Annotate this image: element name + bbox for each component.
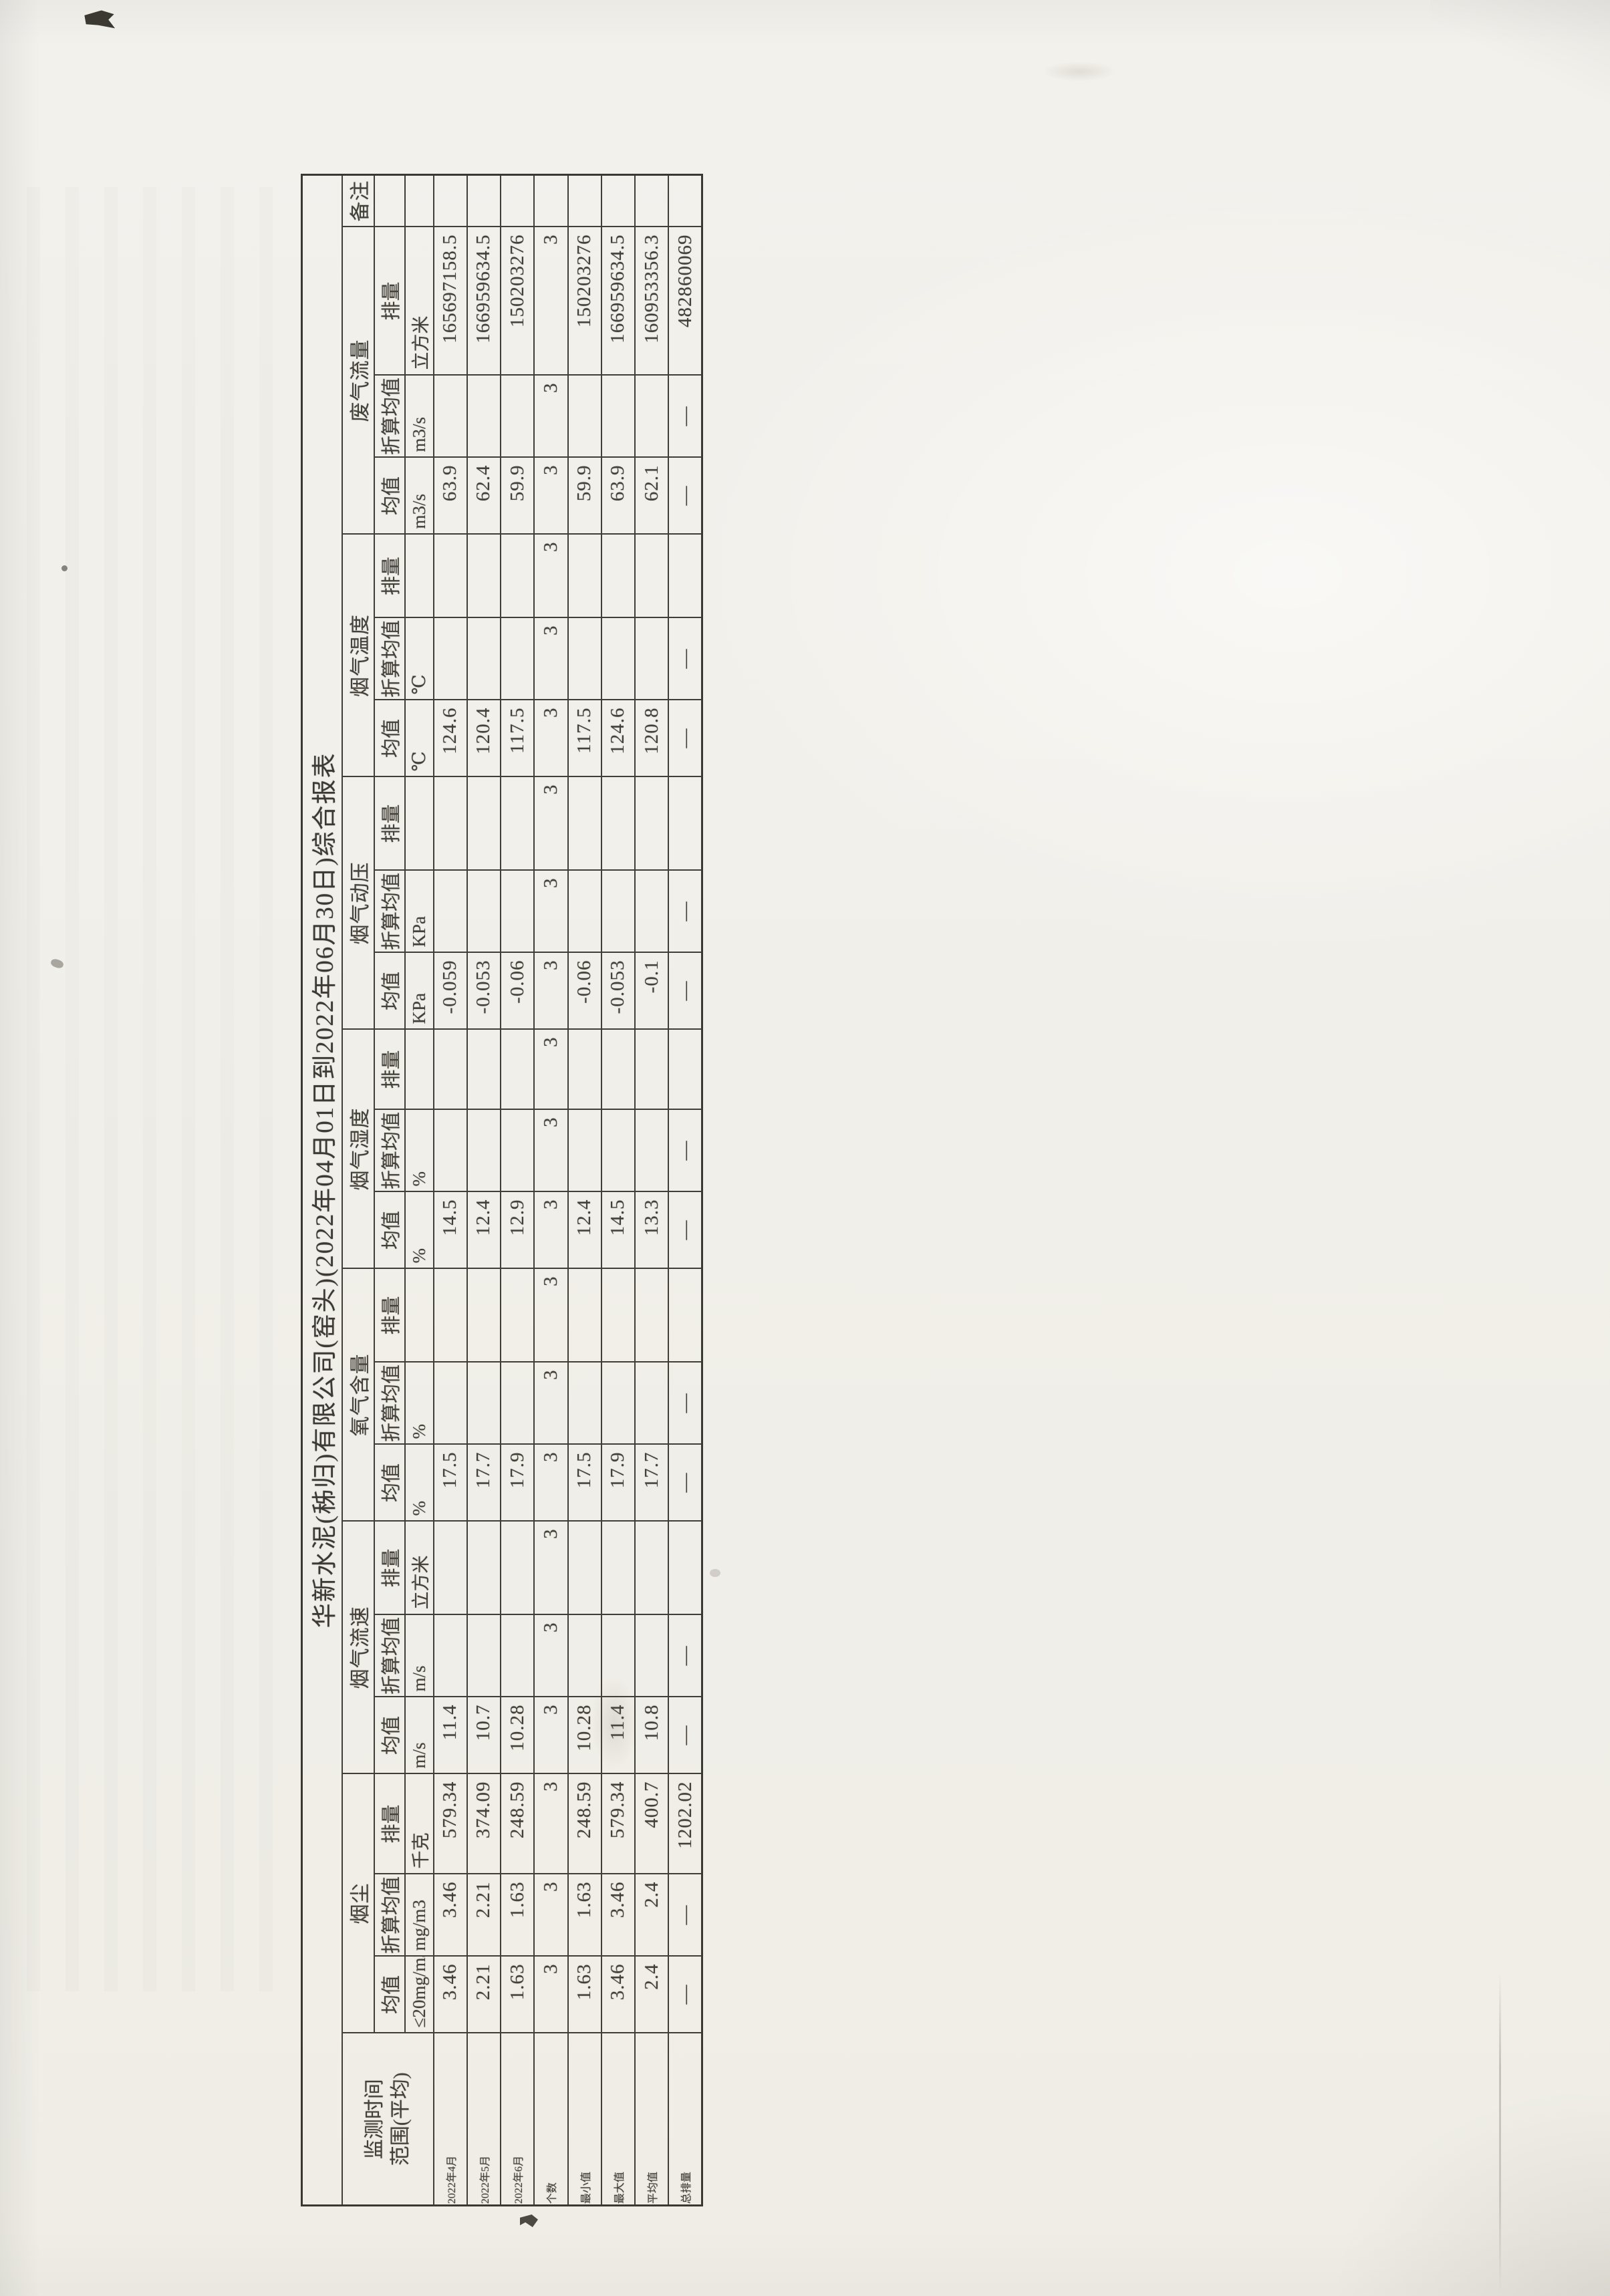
subheader-waste-gas-flow-discharge: 排量: [374, 227, 405, 376]
cell-flue-gas-temperature-discharge-r5: [601, 535, 635, 618]
cell-flue-gas-dynamic-pressure-converted-mean-r5: [601, 871, 635, 953]
unit-waste-gas-flow-discharge: 立方米: [405, 227, 434, 376]
cell-flue-gas-dynamic-pressure-discharge-r5: [601, 777, 635, 871]
subheader-flue-gas-dynamic-pressure-mean: 均值: [374, 953, 405, 1030]
cell-flue-gas-velocity-converted-mean-r3: 3: [534, 1615, 567, 1697]
subheader-flue-gas-temperature-converted-mean: 折算均值: [374, 618, 405, 700]
cell-flue-gas-velocity-discharge-r2: [501, 1522, 534, 1615]
cell-flue-gas-dynamic-pressure-discharge-r7: [668, 777, 702, 871]
cell-flue-gas-humidity-converted-mean-r2: [501, 1110, 534, 1192]
cell-flue-gas-velocity-mean-r3: 3: [534, 1697, 567, 1774]
cell-oxygen-content-converted-mean-r6: [635, 1362, 668, 1445]
cell-oxygen-content-mean-r1: 17.7: [467, 1445, 501, 1522]
cell-flue-gas-dynamic-pressure-converted-mean-r1: [467, 871, 501, 953]
cell-dust-discharge-r1: 374.09: [467, 1774, 501, 1874]
unit-flue-gas-temperature-mean: ℃: [405, 700, 434, 777]
cell-dust-converted-mean-r7: —: [668, 1874, 702, 1957]
cell-oxygen-content-discharge-r4: [568, 1269, 601, 1362]
cell-flue-gas-temperature-discharge-r0: [434, 535, 467, 618]
cell-waste-gas-flow-discharge-r3: 3: [534, 227, 567, 376]
unit-flue-gas-humidity-discharge: [405, 1030, 434, 1110]
scan-artifact-top-right-shade: [1430, 0, 1610, 114]
row-label-1: 2022年5月: [467, 2033, 501, 2206]
unit-dust-discharge: 千克: [405, 1774, 434, 1874]
cell-remark-r3: [534, 174, 567, 227]
cell-flue-gas-temperature-converted-mean-r2: [501, 618, 534, 700]
subheader-flue-gas-humidity-converted-mean: 折算均值: [374, 1110, 405, 1192]
scan-artifact-crease-line: [1499, 1973, 1501, 2293]
cell-oxygen-content-discharge-r5: [601, 1269, 635, 1362]
cell-flue-gas-humidity-mean-r1: 12.4: [467, 1192, 501, 1269]
row-label-6: 平均值: [635, 2033, 668, 2206]
cell-dust-discharge-r5: 579.34: [601, 1774, 635, 1874]
cell-dust-mean-r0: 3.46: [434, 1957, 467, 2033]
cell-flue-gas-dynamic-pressure-mean-r6: -0.1: [635, 953, 668, 1030]
cell-oxygen-content-mean-r5: 17.9: [601, 1445, 635, 1522]
cell-flue-gas-temperature-mean-r1: 120.4: [467, 700, 501, 777]
row-label-0: 2022年4月: [434, 2033, 467, 2206]
cell-dust-discharge-r2: 248.59: [501, 1774, 534, 1874]
cell-flue-gas-temperature-discharge-r2: [501, 535, 534, 618]
unit-flue-gas-humidity-converted-mean: %: [405, 1110, 434, 1192]
cell-waste-gas-flow-converted-mean-r4: [568, 376, 601, 458]
cell-flue-gas-velocity-converted-mean-r7: —: [668, 1615, 702, 1697]
subheader-oxygen-content-converted-mean: 折算均值: [374, 1362, 405, 1445]
cell-flue-gas-humidity-converted-mean-r4: [568, 1110, 601, 1192]
cell-flue-gas-humidity-discharge-r3: 3: [534, 1030, 567, 1110]
cell-remark-r5: [601, 174, 635, 227]
cell-waste-gas-flow-converted-mean-r7: —: [668, 376, 702, 458]
cell-oxygen-content-discharge-r0: [434, 1269, 467, 1362]
cell-flue-gas-humidity-discharge-r7: [668, 1030, 702, 1110]
cell-flue-gas-humidity-discharge-r1: [467, 1030, 501, 1110]
scan-artifact-top-left-mark: [84, 8, 117, 33]
cell-flue-gas-velocity-discharge-r7: [668, 1522, 702, 1615]
unit-waste-gas-flow-mean: m3/s: [405, 458, 434, 535]
cell-flue-gas-dynamic-pressure-discharge-r0: [434, 777, 467, 871]
cell-dust-discharge-r7: 1202.02: [668, 1774, 702, 1874]
cell-dust-converted-mean-r6: 2.4: [635, 1874, 668, 1957]
group-header-waste-gas-flow: 废气流量: [342, 227, 374, 535]
cell-oxygen-content-converted-mean-r4: [568, 1362, 601, 1445]
cell-flue-gas-humidity-discharge-r0: [434, 1030, 467, 1110]
cell-waste-gas-flow-converted-mean-r0: [434, 376, 467, 458]
cell-flue-gas-velocity-discharge-r1: [467, 1522, 501, 1615]
row-label-4: 最小值: [568, 2033, 601, 2206]
cell-flue-gas-temperature-mean-r5: 124.6: [601, 700, 635, 777]
unit-waste-gas-flow-converted-mean: m3/s: [405, 376, 434, 458]
subheader-flue-gas-velocity-discharge: 排量: [374, 1522, 405, 1615]
subheader-dust-converted-mean: 折算均值: [374, 1874, 405, 1957]
subheader-flue-gas-velocity-mean: 均值: [374, 1697, 405, 1774]
unit-flue-gas-velocity-discharge: 立方米: [405, 1522, 434, 1615]
cell-dust-mean-r7: —: [668, 1957, 702, 2033]
cell-oxygen-content-mean-r7: —: [668, 1445, 702, 1522]
cell-flue-gas-humidity-converted-mean-r1: [467, 1110, 501, 1192]
cell-flue-gas-humidity-mean-r3: 3: [534, 1192, 567, 1269]
cell-dust-mean-r1: 2.21: [467, 1957, 501, 2033]
cell-flue-gas-velocity-mean-r1: 10.7: [467, 1697, 501, 1774]
cell-flue-gas-temperature-converted-mean-r4: [568, 618, 601, 700]
remark-subheader-empty: [374, 174, 405, 227]
subheader-flue-gas-humidity-discharge: 排量: [374, 1030, 405, 1110]
cell-waste-gas-flow-discharge-r0: 165697158.5: [434, 227, 467, 376]
row-label-3: 个数: [534, 2033, 567, 2206]
cell-remark-r7: [668, 174, 702, 227]
cell-flue-gas-velocity-converted-mean-r5: [601, 1615, 635, 1697]
cell-flue-gas-humidity-converted-mean-r7: —: [668, 1110, 702, 1192]
row-header-line1: 监测时间: [364, 2079, 386, 2159]
cell-flue-gas-dynamic-pressure-converted-mean-r3: 3: [534, 871, 567, 953]
row-label-2: 2022年6月: [501, 2033, 534, 2206]
cell-oxygen-content-converted-mean-r7: —: [668, 1362, 702, 1445]
cell-flue-gas-velocity-mean-r2: 10.28: [501, 1697, 534, 1774]
cell-dust-discharge-r0: 579.34: [434, 1774, 467, 1874]
group-header-flue-gas-dynamic-pressure: 烟气动压: [342, 777, 374, 1030]
group-header-flue-gas-humidity: 烟气湿度: [342, 1030, 374, 1269]
scan-streaks: [27, 187, 287, 1991]
unit-flue-gas-dynamic-pressure-discharge: [405, 777, 434, 871]
remark-unit-empty: [405, 174, 434, 227]
unit-dust-mean: ≤20mg/m3: [405, 1957, 434, 2033]
cell-oxygen-content-mean-r6: 17.7: [635, 1445, 668, 1522]
cell-oxygen-content-mean-r3: 3: [534, 1445, 567, 1522]
cell-flue-gas-temperature-discharge-r3: 3: [534, 535, 567, 618]
cell-waste-gas-flow-discharge-r7: 482860069: [668, 227, 702, 376]
cell-flue-gas-velocity-discharge-r6: [635, 1522, 668, 1615]
unit-flue-gas-velocity-converted-mean: m/s: [405, 1615, 434, 1697]
cell-waste-gas-flow-discharge-r1: 166959634.5: [467, 227, 501, 376]
cell-waste-gas-flow-discharge-r2: 150203276: [501, 227, 534, 376]
cell-flue-gas-temperature-mean-r2: 117.5: [501, 700, 534, 777]
cell-dust-discharge-r6: 400.7: [635, 1774, 668, 1874]
cell-oxygen-content-discharge-r6: [635, 1269, 668, 1362]
cell-flue-gas-dynamic-pressure-mean-r7: —: [668, 953, 702, 1030]
cell-waste-gas-flow-mean-r0: 63.9: [434, 458, 467, 535]
cell-flue-gas-humidity-mean-r0: 14.5: [434, 1192, 467, 1269]
cell-flue-gas-velocity-mean-r7: —: [668, 1697, 702, 1774]
unit-flue-gas-temperature-converted-mean: ℃: [405, 618, 434, 700]
cell-waste-gas-flow-mean-r4: 59.9: [568, 458, 601, 535]
subheader-dust-mean: 均值: [374, 1957, 405, 2033]
cell-flue-gas-dynamic-pressure-converted-mean-r4: [568, 871, 601, 953]
cell-flue-gas-humidity-discharge-r4: [568, 1030, 601, 1110]
paper-background: 华新水泥(秭归)有限公司(窑头)(2022年04月01日到2022年06月30日…: [0, 0, 1610, 2296]
cell-dust-discharge-r4: 248.59: [568, 1774, 601, 1874]
cell-flue-gas-temperature-discharge-r1: [467, 535, 501, 618]
cell-flue-gas-dynamic-pressure-discharge-r3: 3: [534, 777, 567, 871]
scan-artifact-bottom-mark: [520, 2214, 538, 2227]
cell-flue-gas-dynamic-pressure-mean-r4: -0.06: [568, 953, 601, 1030]
cell-flue-gas-humidity-mean-r5: 14.5: [601, 1192, 635, 1269]
scanned-report-page: { "table": { "title": "华新水泥(秭归)有限公司(窑头)(…: [0, 0, 1610, 2296]
cell-flue-gas-dynamic-pressure-discharge-r4: [568, 777, 601, 871]
cell-dust-converted-mean-r3: 3: [534, 1874, 567, 1957]
cell-waste-gas-flow-mean-r7: —: [668, 458, 702, 535]
cell-oxygen-content-discharge-r2: [501, 1269, 534, 1362]
cell-flue-gas-dynamic-pressure-mean-r1: -0.053: [467, 953, 501, 1030]
cell-dust-converted-mean-r0: 3.46: [434, 1874, 467, 1957]
cell-oxygen-content-converted-mean-r2: [501, 1362, 534, 1445]
cell-flue-gas-dynamic-pressure-mean-r5: -0.053: [601, 953, 635, 1030]
scan-artifact-corner-shadow: [1329, 2082, 1610, 2296]
cell-oxygen-content-discharge-r1: [467, 1269, 501, 1362]
unit-flue-gas-dynamic-pressure-mean: KPa: [405, 953, 434, 1030]
cell-waste-gas-flow-converted-mean-r5: [601, 376, 635, 458]
cell-flue-gas-velocity-converted-mean-r1: [467, 1615, 501, 1697]
cell-flue-gas-temperature-converted-mean-r3: 3: [534, 618, 567, 700]
cell-dust-converted-mean-r1: 2.21: [467, 1874, 501, 1957]
subheader-dust-discharge: 排量: [374, 1774, 405, 1874]
cell-waste-gas-flow-mean-r5: 63.9: [601, 458, 635, 535]
cell-dust-converted-mean-r5: 3.46: [601, 1874, 635, 1957]
row-label-5: 最大值: [601, 2033, 635, 2206]
cell-dust-mean-r3: 3: [534, 1957, 567, 2033]
cell-flue-gas-velocity-discharge-r0: [434, 1522, 467, 1615]
cell-dust-discharge-r3: 3: [534, 1774, 567, 1874]
subheader-flue-gas-temperature-discharge: 排量: [374, 535, 405, 618]
row-header-line2: 范围(平均): [390, 2072, 412, 2166]
cell-waste-gas-flow-converted-mean-r2: [501, 376, 534, 458]
cell-flue-gas-dynamic-pressure-mean-r2: -0.06: [501, 953, 534, 1030]
cell-flue-gas-dynamic-pressure-mean-r0: -0.059: [434, 953, 467, 1030]
cell-flue-gas-humidity-mean-r6: 13.3: [635, 1192, 668, 1269]
cell-flue-gas-velocity-mean-r5: 11.4: [601, 1697, 635, 1774]
cell-flue-gas-velocity-mean-r4: 10.28: [568, 1697, 601, 1774]
cell-oxygen-content-mean-r2: 17.9: [501, 1445, 534, 1522]
cell-oxygen-content-discharge-r3: 3: [534, 1269, 567, 1362]
cell-waste-gas-flow-mean-r6: 62.1: [635, 458, 668, 535]
cell-flue-gas-temperature-mean-r0: 124.6: [434, 700, 467, 777]
cell-flue-gas-velocity-discharge-r4: [568, 1522, 601, 1615]
cell-oxygen-content-converted-mean-r5: [601, 1362, 635, 1445]
cell-flue-gas-velocity-discharge-r5: [601, 1522, 635, 1615]
row-header-cell: 监测时间范围(平均): [342, 2033, 434, 2206]
cell-dust-mean-r5: 3.46: [601, 1957, 635, 2033]
subheader-flue-gas-velocity-converted-mean: 折算均值: [374, 1615, 405, 1697]
subheader-waste-gas-flow-converted-mean: 折算均值: [374, 376, 405, 458]
cell-remark-r6: [635, 174, 668, 227]
cell-dust-mean-r2: 1.63: [501, 1957, 534, 2033]
cell-flue-gas-temperature-mean-r4: 117.5: [568, 700, 601, 777]
cell-flue-gas-velocity-converted-mean-r0: [434, 1615, 467, 1697]
cell-flue-gas-humidity-discharge-r2: [501, 1030, 534, 1110]
cell-dust-mean-r4: 1.63: [568, 1957, 601, 2033]
group-header-flue-gas-temperature: 烟气温度: [342, 535, 374, 777]
cell-oxygen-content-converted-mean-r0: [434, 1362, 467, 1445]
cell-flue-gas-humidity-converted-mean-r3: 3: [534, 1110, 567, 1192]
cell-flue-gas-velocity-converted-mean-r2: [501, 1615, 534, 1697]
cell-flue-gas-temperature-discharge-r6: [635, 535, 668, 618]
cell-flue-gas-temperature-discharge-r4: [568, 535, 601, 618]
cell-flue-gas-dynamic-pressure-discharge-r2: [501, 777, 534, 871]
cell-dust-mean-r6: 2.4: [635, 1957, 668, 2033]
subheader-flue-gas-temperature-mean: 均值: [374, 700, 405, 777]
cell-flue-gas-dynamic-pressure-discharge-r1: [467, 777, 501, 871]
cell-oxygen-content-mean-r4: 17.5: [568, 1445, 601, 1522]
cell-waste-gas-flow-discharge-r5: 166959634.5: [601, 227, 635, 376]
cell-oxygen-content-converted-mean-r1: [467, 1362, 501, 1445]
unit-oxygen-content-discharge: [405, 1269, 434, 1362]
cell-flue-gas-humidity-mean-r2: 12.9: [501, 1192, 534, 1269]
report-title: 华新水泥(秭归)有限公司(窑头)(2022年04月01日到2022年06月30日…: [302, 174, 342, 2205]
unit-dust-converted-mean: mg/m3: [405, 1874, 434, 1957]
cell-flue-gas-velocity-converted-mean-r6: [635, 1615, 668, 1697]
cell-flue-gas-dynamic-pressure-converted-mean-r2: [501, 871, 534, 953]
cell-waste-gas-flow-converted-mean-r3: 3: [534, 376, 567, 458]
cell-flue-gas-velocity-discharge-r3: 3: [534, 1522, 567, 1615]
cell-flue-gas-temperature-discharge-r7: [668, 535, 702, 618]
group-header-oxygen-content: 氧气含量: [342, 1269, 374, 1522]
cell-flue-gas-temperature-converted-mean-r1: [467, 618, 501, 700]
cell-dust-converted-mean-r2: 1.63: [501, 1874, 534, 1957]
subheader-waste-gas-flow-mean: 均值: [374, 458, 405, 535]
cell-waste-gas-flow-mean-r3: 3: [534, 458, 567, 535]
cell-flue-gas-temperature-mean-r7: —: [668, 700, 702, 777]
cell-waste-gas-flow-mean-r2: 59.9: [501, 458, 534, 535]
cell-flue-gas-dynamic-pressure-mean-r3: 3: [534, 953, 567, 1030]
cell-flue-gas-temperature-mean-r3: 3: [534, 700, 567, 777]
cell-flue-gas-humidity-discharge-r5: [601, 1030, 635, 1110]
cell-flue-gas-humidity-converted-mean-r5: [601, 1110, 635, 1192]
unit-flue-gas-temperature-discharge: [405, 535, 434, 618]
cell-flue-gas-temperature-converted-mean-r5: [601, 618, 635, 700]
cell-remark-r1: [467, 174, 501, 227]
cell-waste-gas-flow-discharge-r4: 150203276: [568, 227, 601, 376]
cell-flue-gas-velocity-mean-r0: 11.4: [434, 1697, 467, 1774]
rotated-table-area: 华新水泥(秭归)有限公司(窑头)(2022年04月01日到2022年06月30日…: [301, 175, 687, 2206]
cell-remark-r2: [501, 174, 534, 227]
cell-dust-converted-mean-r4: 1.63: [568, 1874, 601, 1957]
unit-oxygen-content-mean: %: [405, 1445, 434, 1522]
cell-flue-gas-dynamic-pressure-converted-mean-r6: [635, 871, 668, 953]
scan-artifact-smudge-top: [1043, 61, 1116, 82]
subheader-oxygen-content-mean: 均值: [374, 1445, 405, 1522]
cell-flue-gas-humidity-mean-r7: —: [668, 1192, 702, 1269]
cell-flue-gas-dynamic-pressure-discharge-r6: [635, 777, 668, 871]
cell-flue-gas-temperature-converted-mean-r7: —: [668, 618, 702, 700]
cell-waste-gas-flow-mean-r1: 62.4: [467, 458, 501, 535]
cell-flue-gas-velocity-converted-mean-r4: [568, 1615, 601, 1697]
cell-waste-gas-flow-converted-mean-r6: [635, 376, 668, 458]
cell-flue-gas-humidity-converted-mean-r6: [635, 1110, 668, 1192]
cell-flue-gas-humidity-discharge-r6: [635, 1030, 668, 1110]
cell-flue-gas-velocity-mean-r6: 10.8: [635, 1697, 668, 1774]
unit-flue-gas-velocity-mean: m/s: [405, 1697, 434, 1774]
cell-remark-r0: [434, 174, 467, 227]
cell-oxygen-content-discharge-r7: [668, 1269, 702, 1362]
cell-waste-gas-flow-converted-mean-r1: [467, 376, 501, 458]
cell-flue-gas-dynamic-pressure-converted-mean-r0: [434, 871, 467, 953]
report-table-container: 华新水泥(秭归)有限公司(窑头)(2022年04月01日到2022年06月30日…: [301, 175, 688, 2206]
unit-flue-gas-humidity-mean: %: [405, 1192, 434, 1269]
cell-flue-gas-humidity-mean-r4: 12.4: [568, 1192, 601, 1269]
cell-flue-gas-dynamic-pressure-converted-mean-r7: —: [668, 871, 702, 953]
cell-waste-gas-flow-discharge-r6: 160953356.3: [635, 227, 668, 376]
cell-remark-r4: [568, 174, 601, 227]
row-label-7: 总排量: [668, 2033, 702, 2206]
scan-artifact-tiny-speck: [710, 1569, 720, 1577]
subheader-oxygen-content-discharge: 排量: [374, 1269, 405, 1362]
unit-oxygen-content-converted-mean: %: [405, 1362, 434, 1445]
remark-header: 备注: [342, 174, 374, 227]
subheader-flue-gas-humidity-mean: 均值: [374, 1192, 405, 1269]
unit-flue-gas-dynamic-pressure-converted-mean: KPa: [405, 871, 434, 953]
cell-flue-gas-temperature-converted-mean-r6: [635, 618, 668, 700]
subheader-flue-gas-dynamic-pressure-discharge: 排量: [374, 777, 405, 871]
cell-oxygen-content-converted-mean-r3: 3: [534, 1362, 567, 1445]
cell-oxygen-content-mean-r0: 17.5: [434, 1445, 467, 1522]
cell-flue-gas-temperature-mean-r6: 120.8: [635, 700, 668, 777]
group-header-dust: 烟尘: [342, 1774, 374, 2033]
subheader-flue-gas-dynamic-pressure-converted-mean: 折算均值: [374, 871, 405, 953]
cell-flue-gas-temperature-converted-mean-r0: [434, 618, 467, 700]
cell-flue-gas-humidity-converted-mean-r0: [434, 1110, 467, 1192]
report-table: 华新水泥(秭归)有限公司(窑头)(2022年04月01日到2022年06月30日…: [301, 174, 703, 2206]
group-header-flue-gas-velocity: 烟气流速: [342, 1522, 374, 1774]
